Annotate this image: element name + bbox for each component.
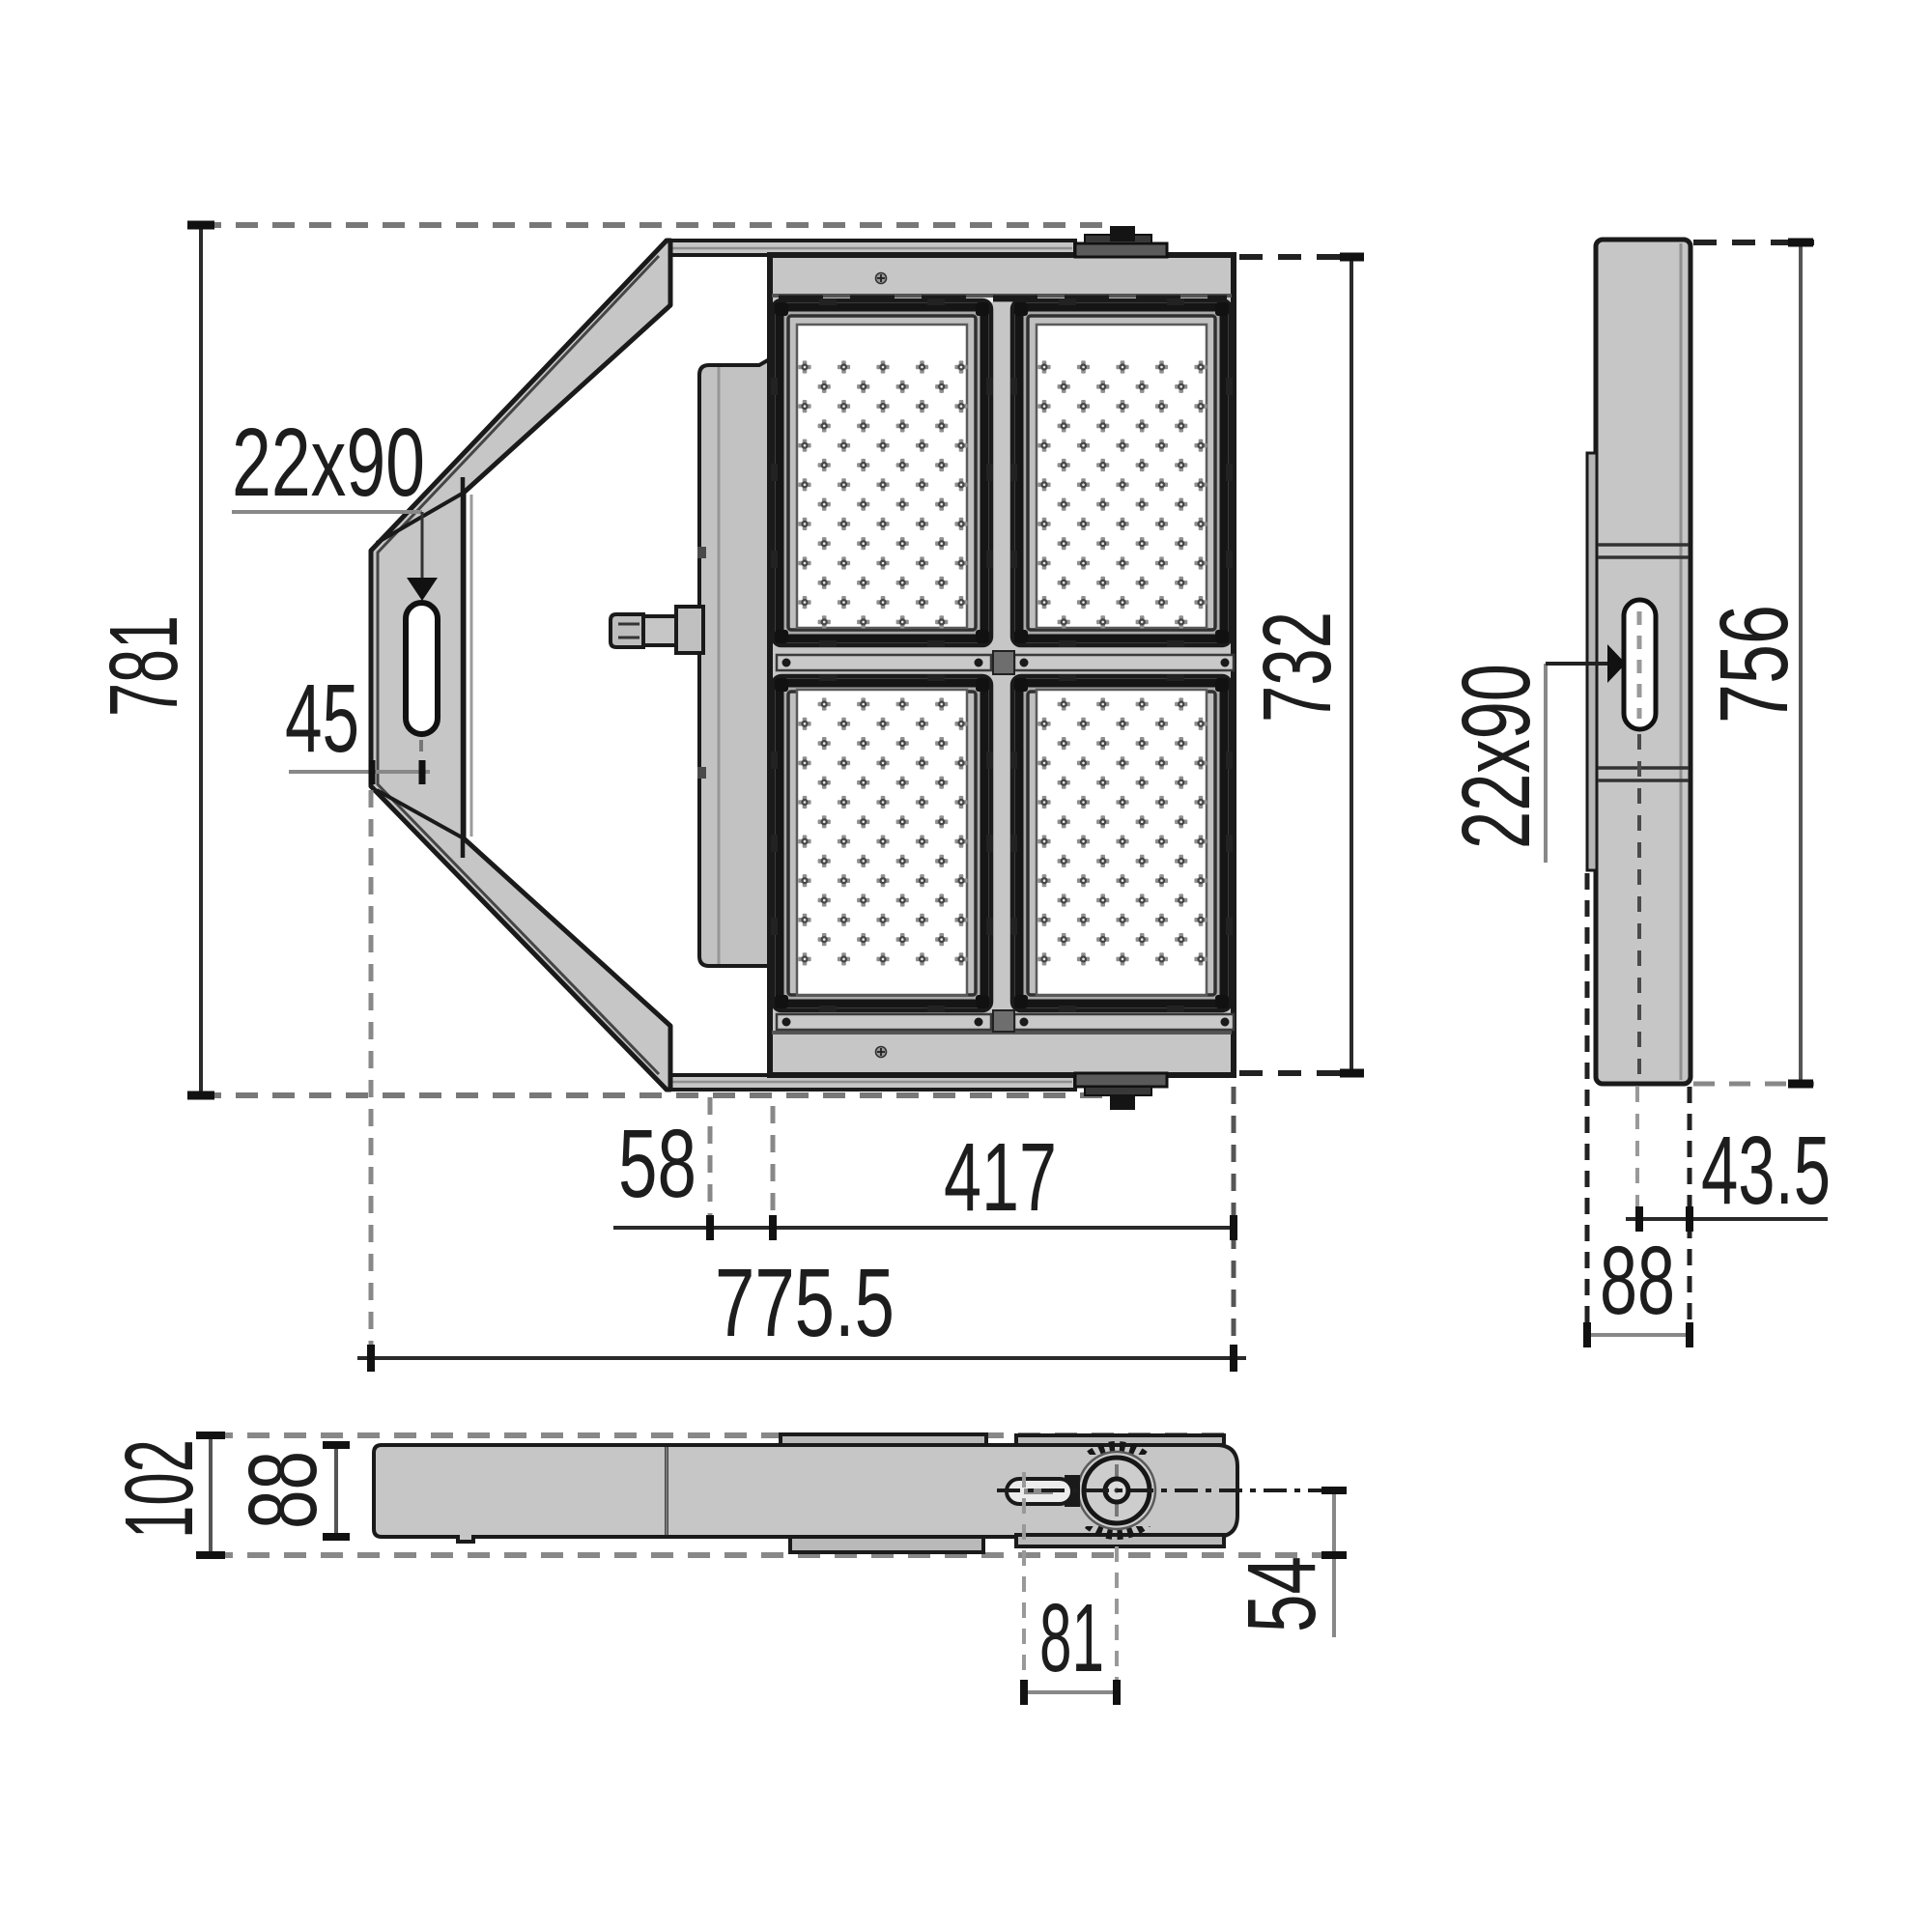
- svg-text:781: 781: [90, 615, 198, 717]
- svg-text:756: 756: [1700, 605, 1808, 723]
- svg-text:775.5: 775.5: [715, 1249, 895, 1357]
- svg-text:54: 54: [1228, 1556, 1336, 1632]
- svg-text:81: 81: [1039, 1584, 1104, 1692]
- svg-text:417: 417: [944, 1123, 1057, 1232]
- svg-text:22x90: 22x90: [1442, 664, 1550, 849]
- svg-text:102: 102: [105, 1439, 213, 1539]
- svg-text:43.5: 43.5: [1701, 1117, 1831, 1225]
- svg-text:58: 58: [618, 1110, 696, 1218]
- svg-text:45: 45: [285, 665, 359, 773]
- svg-text:22x90: 22x90: [232, 409, 425, 517]
- svg-text:732: 732: [1243, 611, 1351, 723]
- svg-text:88: 88: [229, 1451, 337, 1529]
- svg-text:88: 88: [1600, 1227, 1675, 1335]
